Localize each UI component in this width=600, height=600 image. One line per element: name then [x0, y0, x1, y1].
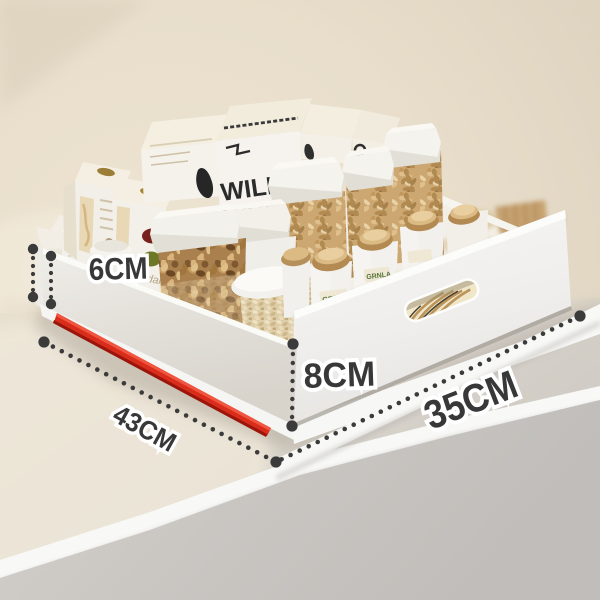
svg-text:8CM: 8CM	[303, 355, 376, 396]
svg-text:6CM: 6CM	[88, 251, 148, 287]
